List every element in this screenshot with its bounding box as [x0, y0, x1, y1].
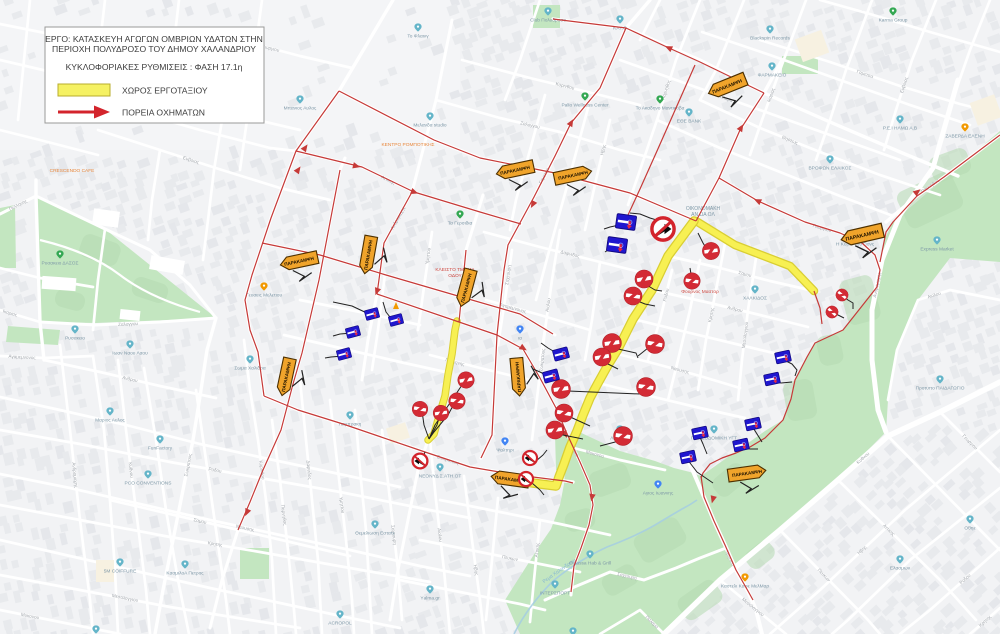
svg-text:Υalma.gr: Υalma.gr: [420, 596, 440, 602]
svg-text:Ελασμων: Ελασμων: [890, 566, 911, 572]
svg-text:5Μ COIFFURE: 5Μ COIFFURE: [104, 569, 137, 575]
svg-text:ΚΕΝΤΡΟ ΡΟΜΠΟΤΙΚΗΣ: ΚΕΝΤΡΟ ΡΟΜΠΟΤΙΚΗΣ: [381, 142, 434, 148]
svg-text:ΠΟΡΕΙΑ ΟΧΗΜΑΤΩΝ: ΠΟΡΕΙΑ ΟΧΗΜΑΤΩΝ: [122, 108, 205, 118]
svg-text:FunFactory: FunFactory: [148, 446, 173, 452]
svg-text:Ζαλογγου: Ζαλογγου: [118, 321, 139, 327]
svg-text:Ρ.Ε.Ι ΗΛΜΩ Α.Β: Ρ.Ε.Ι ΗΛΜΩ Α.Β: [883, 126, 917, 132]
svg-text:ΒΡΟΦΩΝ ΕΛΑΙΚΟΣ: ΒΡΟΦΩΝ ΕΛΑΙΚΟΣ: [808, 166, 851, 172]
svg-text:Ρυσακειο ΔΑΣΟΣ: Ρυσακειο ΔΑΣΟΣ: [42, 261, 79, 267]
svg-text:Μπανιος Αυλος: Μπανιος Αυλος: [284, 106, 317, 112]
svg-text:Το Φλαινγ: Το Φλαινγ: [407, 34, 429, 40]
svg-text:Γευσεις Μελετιου: Γευσεις Μελετιου: [246, 293, 283, 299]
svg-text:ΝΕΟΝΥΔ Σ.ΑΤΗ.ΟΤ: ΝΕΟΝΥΔ Σ.ΑΤΗ.ΟΤ: [419, 474, 462, 480]
svg-text:Κarma Group: Κarma Group: [879, 18, 908, 24]
svg-text:Blackspin Records: Blackspin Records: [750, 36, 790, 42]
svg-text:ΟΔΟΥ: ΟΔΟΥ: [448, 273, 462, 279]
svg-text:Μελανδα studio: Μελανδα studio: [413, 123, 447, 129]
svg-text:ΠΕΡΙΟΧΗ ΠΟΛΥΔΡΟΣΟ ΤΟΥ ΔΗΜΟΥ ΧΑ: ΠΕΡΙΟΧΗ ΠΟΛΥΔΡΟΣΟ ΤΟΥ ΔΗΜΟΥ ΧΑΛΑΝΔΡΙΟΥ: [52, 44, 256, 54]
svg-text:ΑCROPOL: ΑCROPOL: [328, 621, 352, 627]
svg-text:ΚΥΚΛΟΦΟΡΙΑΚΕΣ ΡΥΘΜΙΣΕΙΣ : ΦΑΣΗ: ΚΥΚΛΟΦΟΡΙΑΚΕΣ ΡΥΘΜΙΣΕΙΣ : ΦΑΣΗ 17.1η: [66, 62, 243, 72]
svg-text:PCO CONVENTIONS: PCO CONVENTIONS: [125, 481, 172, 487]
svg-text:ια: ια: [518, 337, 522, 342]
svg-text:Αγιος Ιωαννης: Αγιος Ιωαννης: [643, 491, 674, 497]
svg-text:Τα Γερσιδια: Τα Γερσιδια: [448, 221, 473, 227]
svg-text:Ψαλτηρι: Ψαλτηρι: [496, 448, 513, 454]
svg-text:Προτυπο ΠΑΙΔΑΓΩΓΙΟ: Προτυπο ΠΑΙΔΑΓΩΓΙΟ: [916, 386, 965, 392]
svg-text:CRESCENDO CAFE: CRESCENDO CAFE: [50, 168, 95, 174]
svg-text:ΦΑΡΜΑΚΕΙΟ: ΦΑΡΜΑΚΕΙΟ: [758, 73, 787, 79]
svg-text:Οθηε: Οθηε: [964, 526, 976, 532]
svg-text:Μαριος Αυλος: Μαριος Αυλος: [95, 418, 125, 424]
svg-text:Φουρνος Μαστορ: Φουρνος Μαστορ: [681, 289, 719, 295]
svg-text:ΙΝΤΕΡΣΠΟΡΤ: ΙΝΤΕΡΣΠΟΡΤ: [540, 591, 570, 597]
svg-text:Ρυσακειο: Ρυσακειο: [65, 336, 85, 342]
svg-text:Express Market: Express Market: [920, 247, 954, 253]
svg-text:ΖΑΒΕΡΔΑ ΕΛΕΝΗ: ΖΑΒΕΡΔΑ ΕΛΕΝΗ: [945, 134, 985, 140]
svg-text:Θεμελιωση Εστατε: Θεμελιωση Εστατε: [355, 531, 396, 537]
svg-text:ΚασμιλοΑ Πετρος: ΚασμιλοΑ Πετρος: [166, 571, 204, 577]
svg-text:Ιωαν Ναου Λαου: Ιωαν Ναου Λαου: [112, 351, 148, 357]
svg-text:ΧΩΡΟΣ ΕΡΓΟΤΑΞΙΟΥ: ΧΩΡΟΣ ΕΡΓΟΤΑΞΙΟΥ: [122, 86, 208, 96]
svg-text:ΕΘΕ ΒΑΝΚ: ΕΘΕ ΒΑΝΚ: [677, 119, 702, 125]
svg-text:ΧΑΛΚΙΔΟΣ: ΧΑΛΚΙΔΟΣ: [743, 296, 767, 302]
svg-text:ΕΡΓΟ: ΚΑΤΑΣΚΕΥΗ ΑΓΩΓΩΝ ΟΜΒΡΙΩΝ: ΕΡΓΟ: ΚΑΤΑΣΚΕΥΗ ΑΓΩΓΩΝ ΟΜΒΡΙΩΝ ΥΔΑΤΩΝ ΣΤ…: [45, 34, 263, 44]
